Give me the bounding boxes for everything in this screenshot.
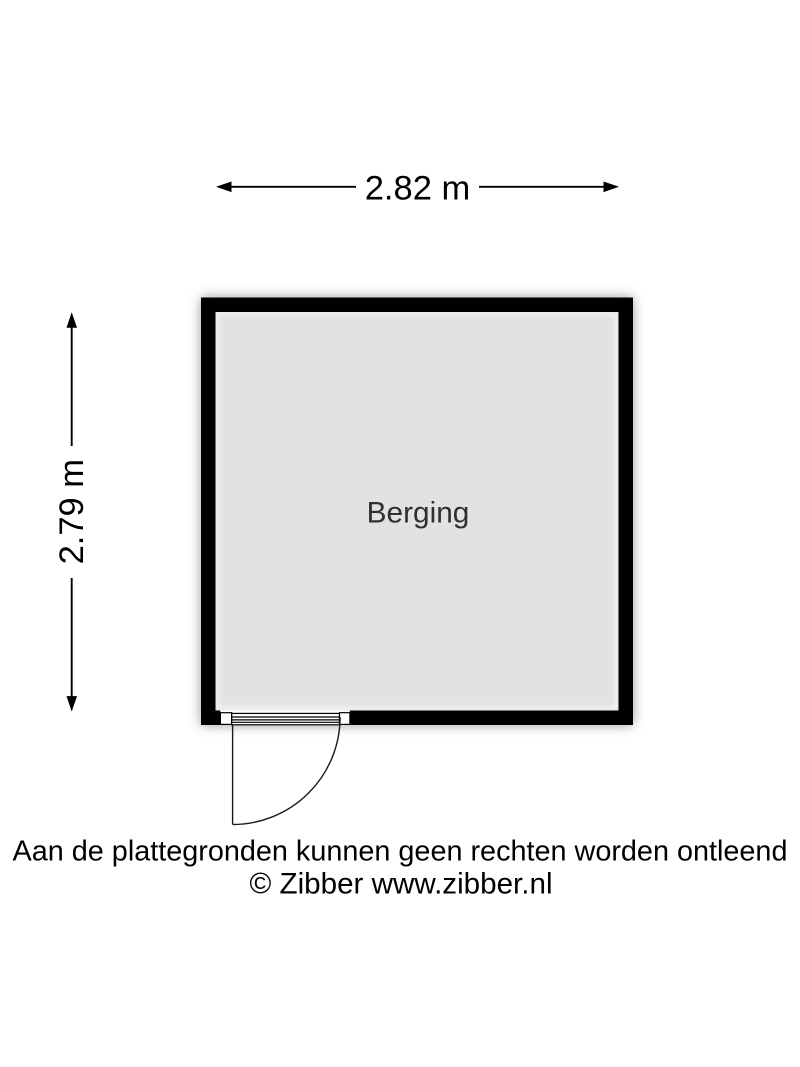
- svg-text:2.82 m: 2.82 m: [365, 170, 470, 208]
- svg-text:2.79 m: 2.79 m: [53, 459, 91, 564]
- svg-text:© Zibber www.zibber.nl: © Zibber www.zibber.nl: [249, 867, 552, 900]
- svg-text:Aan de plattegronden kunnen ge: Aan de plattegronden kunnen geen rechten…: [13, 836, 788, 868]
- svg-text:Berging: Berging: [367, 497, 470, 530]
